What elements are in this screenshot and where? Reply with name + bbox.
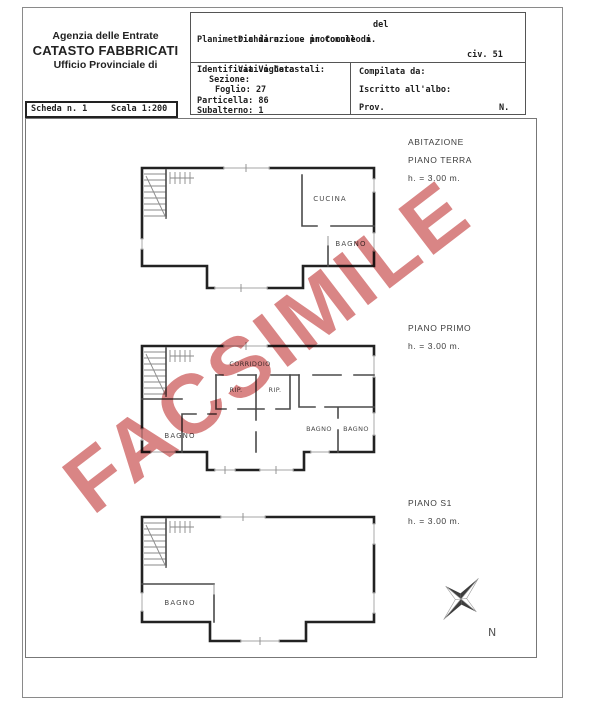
- room-label-rip: RIP.: [229, 386, 242, 394]
- piano-terra-label: PIANO TERRA: [408, 151, 472, 169]
- floor-title-piano-s1: PIANO S1 h. = 3.00 m.: [408, 494, 460, 530]
- cadastral-document-page: Agenzia delle Entrate CATASTO FABBRICATI…: [0, 0, 600, 714]
- room-label-bagno: BAGNO: [306, 425, 332, 433]
- staircase-icon: [144, 170, 194, 218]
- staircase-icon: [144, 348, 194, 396]
- height-label: h. = 3.00 m.: [408, 337, 471, 355]
- floor-plan-piano-s1: BAGNO: [142, 513, 374, 645]
- floor-title-piano-terra: ABITAZIONE PIANO TERRA h. = 3.00 m.: [408, 133, 472, 187]
- room-label-bagno: BAGNO: [164, 599, 195, 607]
- room-label-bagno: BAGNO: [343, 425, 369, 433]
- room-label-rip: RIP.: [268, 386, 281, 394]
- staircase-icon: [144, 519, 194, 567]
- abitazione-label: ABITAZIONE: [408, 133, 472, 151]
- room-label-bagno: BAGNO: [335, 240, 366, 248]
- room-label-cucina: CUCINA: [313, 195, 347, 203]
- room-label-corridoio: CORRIDOIO: [229, 360, 270, 368]
- compass-rose-icon: [428, 565, 493, 632]
- piano-primo-label: PIANO PRIMO: [408, 319, 471, 337]
- floor-title-piano-primo: PIANO PRIMO h. = 3.00 m.: [408, 319, 471, 355]
- height-label: h. = 3.00 m.: [408, 512, 460, 530]
- room-label-bagno: BAGNO: [164, 432, 195, 440]
- north-label: N: [488, 626, 496, 639]
- height-label: h. = 3.00 m.: [408, 169, 472, 187]
- floor-plans-drawing: CUCINA BAGNO CORRI: [0, 0, 600, 714]
- floor-plan-piano-primo: CORRIDOIO RIP. RIP. BAGNO BAGNO BAGNO: [142, 342, 374, 474]
- floor-plan-piano-terra: CUCINA BAGNO: [142, 164, 374, 292]
- piano-s1-label: PIANO S1: [408, 494, 460, 512]
